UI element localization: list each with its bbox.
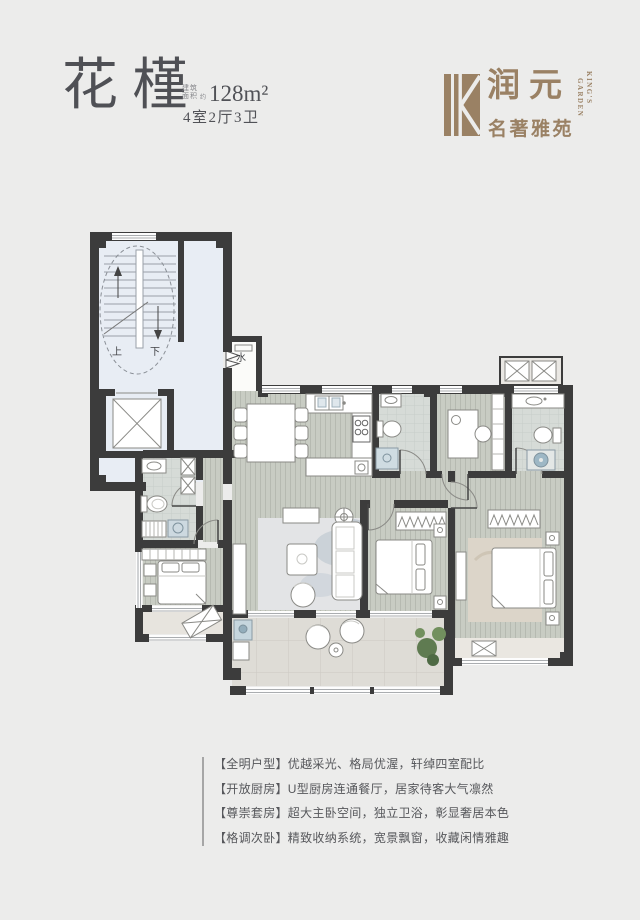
water-meter-label: 水 (236, 354, 246, 364)
flyer-page: 花槿 建筑 面积 约 128m² 4室2厅3卫 润元 名著雅苑 KING'S G… (0, 0, 640, 920)
stair-up-label: 上 (112, 348, 122, 358)
feature-list: 【全明户型】优越采光、格局优渥，轩绰四室配比 【开放厨房】U型厨房连通餐厅，居家… (214, 752, 509, 850)
feature-line: 【开放厨房】U型厨房连通餐厅，居家待客大气凛然 (214, 777, 509, 802)
ac-platform (500, 357, 562, 385)
feature-line: 【格调次卧】精致收纳系统，宽景飘窗，收藏闲情雅趣 (214, 826, 509, 851)
bedroom-left (142, 549, 206, 604)
stair-down-label: 下 (150, 348, 160, 358)
feature-line: 【全明户型】优越采光、格局优渥，轩绰四室配比 (214, 752, 509, 777)
features-divider (202, 757, 204, 846)
feature-line: 【尊崇套房】超大主卧空间，独立卫浴，彰显奢居本色 (214, 801, 509, 826)
dining-table (234, 404, 308, 462)
